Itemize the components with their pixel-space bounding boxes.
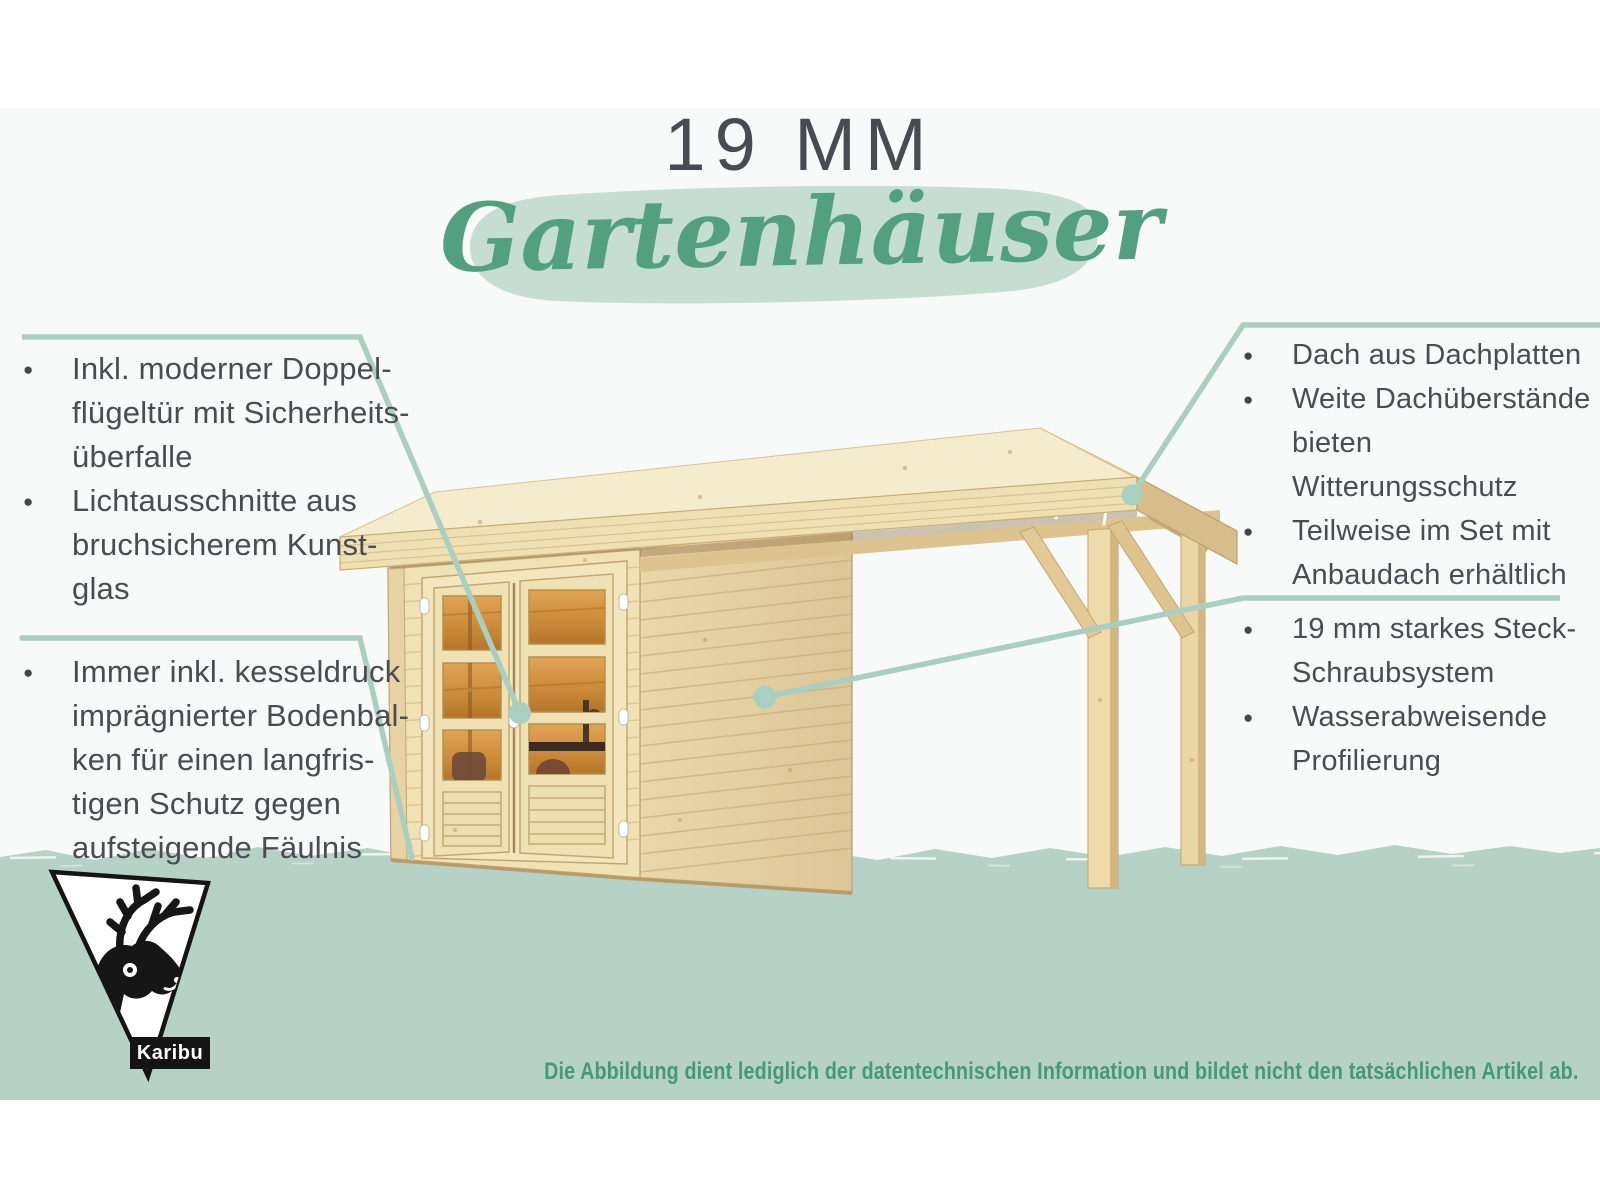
list-item: Immer inkl. kesseldruck imprägnierter Bo… [20, 650, 415, 870]
size-label: 19 MM [0, 102, 1600, 187]
anchor-dot-roof [1122, 485, 1143, 506]
anchor-dot-wall [754, 686, 777, 709]
list-item: Dach aus Dachplatten [1232, 333, 1600, 377]
list-item: Inkl. moderner Doppel- flügeltür mit Sic… [20, 347, 410, 479]
bullet-list: Immer inkl. kesseldruck imprägnierter Bo… [20, 650, 415, 870]
callout-bottom-right: 19 mm starkes Steck- Schraubsystem Wasse… [1232, 607, 1600, 783]
bullet-list: Dach aus Dachplatten Weite Dachüberständ… [1232, 333, 1600, 597]
list-item: Lichtausschnitte aus bruchsicherem Kunst… [20, 479, 410, 611]
bullet-list: Inkl. moderner Doppel- flügeltür mit Sic… [20, 347, 410, 611]
bullet-list: 19 mm starkes Steck- Schraubsystem Wasse… [1232, 607, 1600, 783]
karibu-brand-label: Karibu [130, 1037, 210, 1069]
page-title-script: Gartenhäuser [439, 172, 1141, 294]
anchor-dot-door [509, 702, 531, 724]
callout-top-left: Inkl. moderner Doppel- flügeltür mit Sic… [20, 347, 410, 611]
infographic-root: 19 MM Gartenhäuser Inkl. moderner Doppel… [0, 0, 1600, 1200]
list-item: Wasserabweisende Profilierung [1232, 695, 1600, 783]
disclaimer-text: Die Abbildung dient lediglich der datent… [544, 1058, 1578, 1086]
list-item: Teilweise im Set mit Anbaudach erhältlic… [1232, 509, 1600, 597]
list-item: Weite Dachüberstände bieten Witterungssc… [1232, 377, 1600, 509]
garden-house-illustration [340, 428, 1237, 893]
callout-bottom-left: Immer inkl. kesseldruck imprägnierter Bo… [20, 650, 415, 870]
shed-side-wall [640, 525, 852, 893]
door-glass-right [529, 590, 605, 788]
list-item: 19 mm starkes Steck- Schraubsystem [1232, 607, 1600, 695]
callout-top-right: Dach aus Dachplatten Weite Dachüberständ… [1232, 333, 1600, 597]
